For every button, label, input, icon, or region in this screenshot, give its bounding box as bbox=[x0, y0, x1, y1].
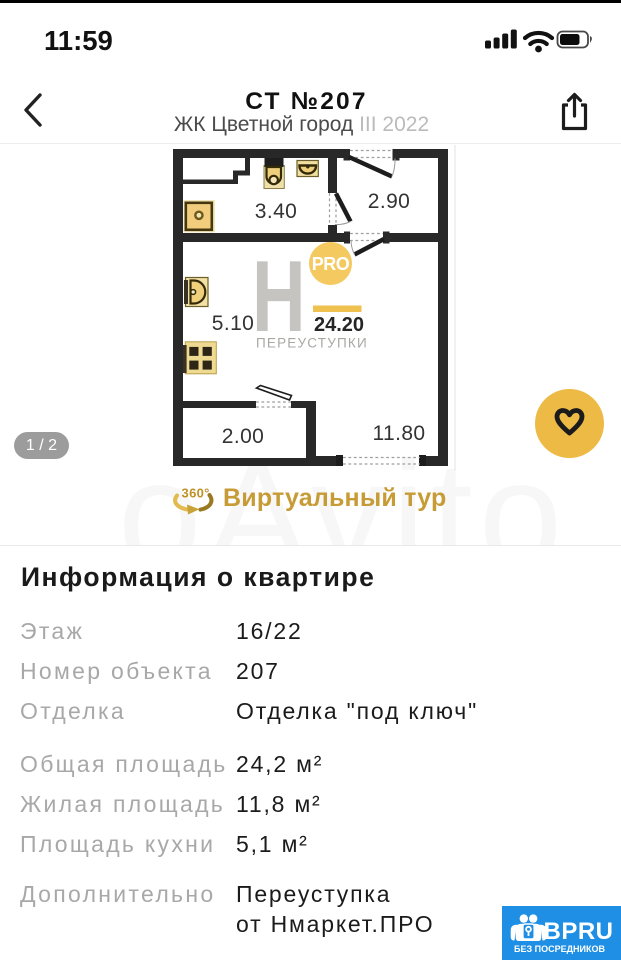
svg-text:24.20: 24.20 bbox=[314, 314, 364, 336]
svg-text:PRO: PRO bbox=[312, 254, 350, 274]
svg-text:BPRU: BPRU bbox=[544, 918, 614, 945]
svg-text:ПЕРЕУСТУПКИ: ПЕРЕУСТУПКИ bbox=[256, 336, 368, 351]
svg-text:2.90: 2.90 bbox=[368, 190, 410, 213]
svg-text:360°: 360° bbox=[182, 486, 210, 501]
svg-text:БЕЗ ПОСРЕДНИКОВ: БЕЗ ПОСРЕДНИКОВ bbox=[514, 944, 605, 954]
svg-text:2.00: 2.00 bbox=[222, 425, 264, 448]
svg-text:11.80: 11.80 bbox=[373, 422, 426, 445]
svg-text:5.10: 5.10 bbox=[212, 312, 254, 335]
svg-text:3.40: 3.40 bbox=[255, 200, 297, 223]
